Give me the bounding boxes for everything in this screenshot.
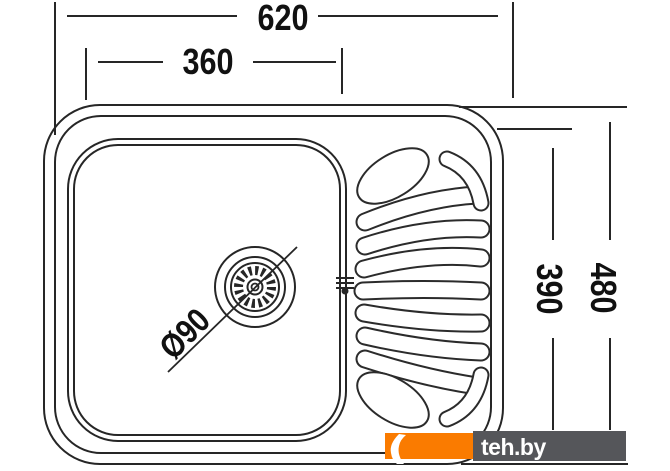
dim-label-bowl-depth: 390 — [531, 263, 567, 314]
dimension-lines — [55, 2, 628, 464]
watermark-text: teh.by — [481, 433, 546, 461]
bowl-inner-rim — [74, 145, 340, 435]
sink-technical-drawing: 620 360 480 390 Ø90 teh.by — [0, 0, 670, 471]
dim-label-bowl-width: 360 — [182, 44, 233, 80]
bowl-outer-rim — [68, 139, 346, 441]
drainer-ribs — [348, 137, 481, 439]
watermark: teh.by — [385, 431, 626, 461]
dim-label-total-width: 620 — [257, 0, 308, 36]
sink-drawing — [0, 0, 670, 471]
dim-label-total-depth: 480 — [585, 262, 621, 313]
watermark-flame-icon — [385, 431, 413, 467]
